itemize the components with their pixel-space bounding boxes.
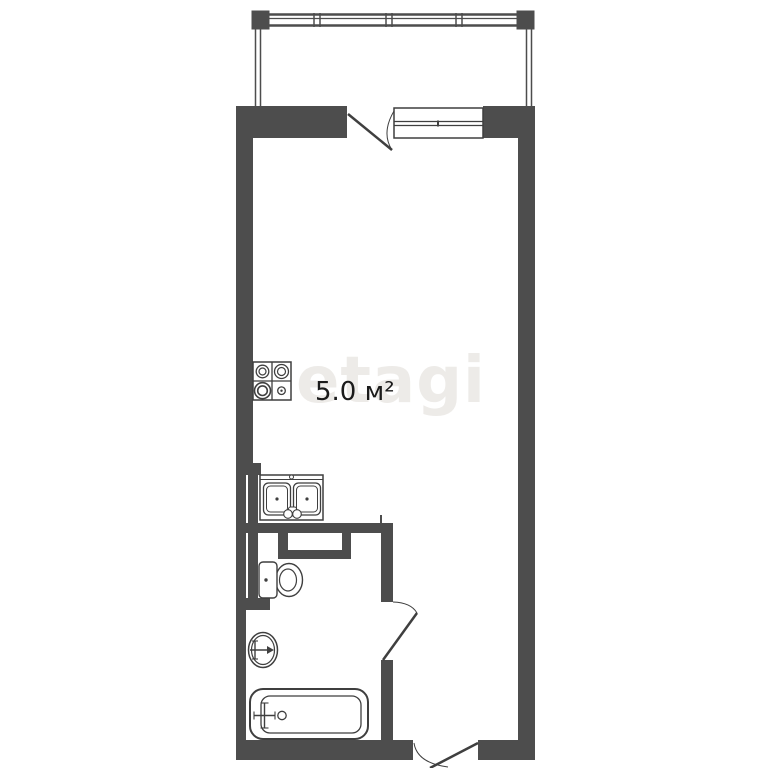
entrance-door-leaf [430, 743, 478, 768]
balcony-post-left [252, 11, 269, 29]
bottom-wall-left [236, 740, 413, 760]
floor-plan: etagi [0, 0, 768, 768]
toilet-icon [259, 562, 303, 598]
plumbing-chase-wall [248, 475, 258, 610]
walls [236, 106, 535, 760]
floor-plan-page: etagi [0, 0, 768, 768]
balcony-door-icon [348, 111, 394, 150]
bathroom-door-arc [393, 602, 417, 613]
bathroom-door-icon [383, 602, 417, 660]
wall-junction-tick [380, 515, 382, 523]
shaft-wall-bottom [278, 550, 351, 559]
window-center-tick [437, 121, 439, 127]
area-label: 5.0 м² [315, 377, 395, 407]
bathroom-right-wall-lower [381, 660, 393, 740]
bathroom-right-wall-upper [381, 523, 393, 602]
chase-stub [246, 598, 270, 610]
right-wall [518, 106, 535, 760]
stove-icon [253, 362, 291, 400]
wash-basin-icon [249, 633, 278, 668]
balcony-glazing-icon [252, 11, 534, 106]
doors [348, 111, 478, 768]
entrance-door-icon [414, 743, 478, 768]
window-icon [394, 108, 483, 138]
balcony-door-arc [387, 111, 394, 150]
bathtub-icon [250, 689, 368, 739]
kitchen-sink-icon [260, 475, 323, 520]
bathroom-top-wall [246, 523, 393, 533]
balcony-post-right [517, 11, 534, 29]
bottom-wall-right [478, 740, 535, 760]
entrance-door-arc [414, 743, 448, 767]
left-wall-upper [236, 106, 253, 475]
left-wall-lower [236, 463, 246, 760]
bathroom-door-leaf [383, 613, 417, 660]
balcony-door-leaf [348, 114, 392, 150]
